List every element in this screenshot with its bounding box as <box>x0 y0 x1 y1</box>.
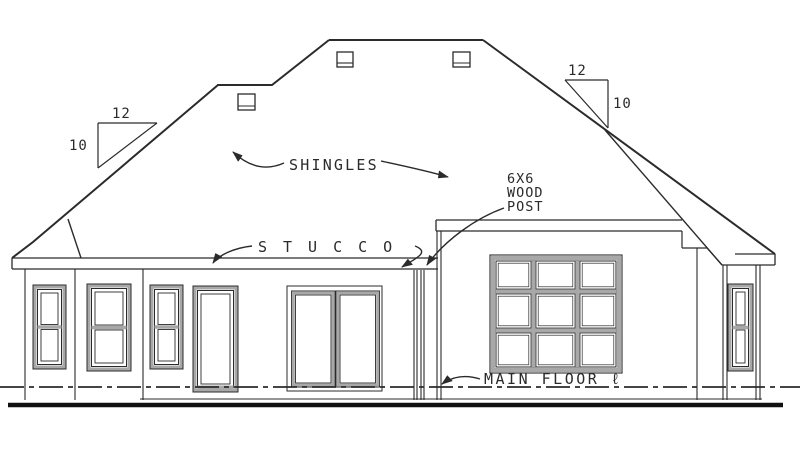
main-floor-leader <box>442 377 480 384</box>
porch-fascia <box>722 254 775 265</box>
slider-panel <box>292 291 336 387</box>
slider-panel <box>336 291 380 387</box>
roof-vent <box>453 52 470 67</box>
right-wing-corner <box>437 231 441 400</box>
post-6x6 <box>414 270 424 400</box>
floor-grade <box>0 387 800 405</box>
roof-vent <box>337 52 353 67</box>
grid-window <box>490 255 622 373</box>
wood-post-label-3: POST <box>507 199 544 215</box>
roof-right-slope <box>483 40 775 254</box>
roof-left-slope <box>12 40 329 258</box>
roof-vent <box>238 94 255 110</box>
stucco-leader-left <box>213 246 252 263</box>
left-eave-band <box>12 258 438 269</box>
windows-group <box>33 255 753 392</box>
wall-lines <box>25 231 760 400</box>
shingles-leader-right <box>381 161 448 177</box>
main-floor-label: MAIN FLOOR ℓ <box>484 370 622 388</box>
pitch-right-run: 12 <box>568 63 587 79</box>
pitch-right-rise: 10 <box>613 96 632 112</box>
fascia-step <box>682 231 722 265</box>
elevation-canvas: 12 10 12 10 SHINGLES STUCCO 6X6 WOOD POS… <box>0 0 800 452</box>
roof-right-hip <box>605 130 722 265</box>
pitch-indicator-right: 12 10 <box>565 63 632 128</box>
shingles-label: SHINGLES <box>289 156 379 174</box>
roof-left-hip <box>68 219 81 258</box>
shingles-leader-left <box>233 152 284 167</box>
stucco-label: STUCCO <box>258 238 408 256</box>
roof-vents <box>238 52 470 110</box>
patio-door <box>193 286 238 392</box>
pitch-left-rise: 10 <box>69 138 88 154</box>
pitch-indicator-left: 12 10 <box>69 106 157 168</box>
pitch-left-run: 12 <box>112 106 131 122</box>
elevation-drawing: 12 10 12 10 SHINGLES STUCCO 6X6 WOOD POS… <box>0 0 800 452</box>
